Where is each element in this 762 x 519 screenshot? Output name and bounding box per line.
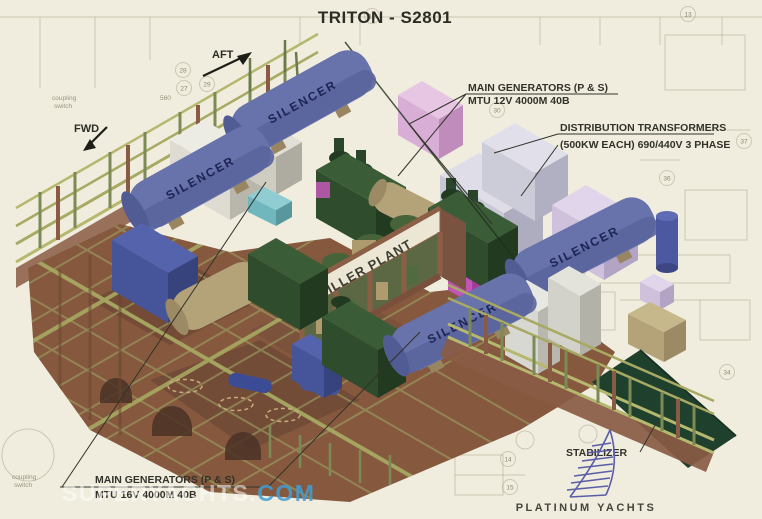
page-title: TRITON - S2801: [318, 8, 452, 27]
engine-room-diagram: coupling switch 560 coupling switch 13 1…: [0, 0, 762, 519]
svg-text:MTU 12V 4000M 40B: MTU 12V 4000M 40B: [468, 95, 570, 107]
svg-text:36: 36: [663, 176, 671, 183]
cooler-box-teal: [248, 187, 292, 226]
svg-text:34: 34: [723, 370, 731, 377]
svg-text:27: 27: [180, 86, 188, 93]
svg-text:AFT: AFT: [212, 49, 234, 61]
sea-water-cylinder: [656, 211, 678, 273]
sail-icon: [567, 430, 615, 497]
svg-text:coupling: coupling: [52, 95, 77, 102]
svg-text:29: 29: [203, 82, 211, 89]
svg-text:30: 30: [493, 108, 501, 115]
svg-text:560: 560: [160, 95, 171, 102]
watermark: SUPERYACHTS.COM: [62, 480, 315, 506]
svg-text:switch: switch: [14, 482, 32, 489]
diagram-canvas: coupling switch 560 coupling switch 13 1…: [0, 0, 762, 519]
aft-arrow: AFT: [203, 49, 252, 76]
svg-text:28: 28: [179, 68, 187, 75]
svg-text:14: 14: [504, 457, 512, 464]
svg-text:coupling: coupling: [12, 474, 37, 481]
svg-text:FWD: FWD: [74, 123, 99, 135]
svg-text:37: 37: [740, 139, 748, 146]
pump-box-lavender-right: [640, 274, 674, 310]
watermark-accent: COM: [257, 480, 315, 506]
svg-text:switch: switch: [54, 103, 72, 110]
watermark-faint: SUPERYACHTS.: [62, 480, 257, 506]
svg-text:DISTRIBUTION TRANSFORMERS: DISTRIBUTION TRANSFORMERS: [560, 122, 726, 134]
svg-text:MAIN GENERATORS (P & S): MAIN GENERATORS (P & S): [468, 82, 608, 94]
platinum-yachts-name: PLATINUM YACHTS: [516, 502, 657, 514]
svg-text:(500KW EACH) 690/440V 3 PHASE: (500KW EACH) 690/440V 3 PHASE: [560, 139, 730, 151]
svg-text:15: 15: [506, 485, 514, 492]
fwd-arrow: FWD: [74, 123, 107, 151]
svg-text:13: 13: [684, 12, 692, 19]
pump-box-pink-aft: [398, 81, 463, 159]
